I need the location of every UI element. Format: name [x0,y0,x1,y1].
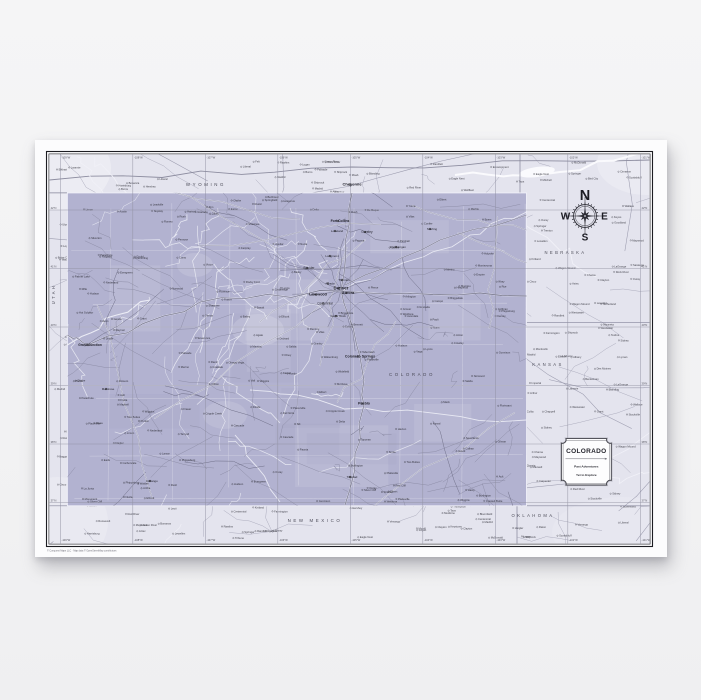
svg-text:Scottsbluff: Scottsbluff [559,534,572,538]
svg-text:Springfield: Springfield [265,198,278,202]
svg-text:Norwood: Norwood [474,374,485,378]
svg-text:Madrid: Madrid [315,186,324,190]
svg-text:Elbert: Elbert [319,390,326,394]
svg-text:Fleming: Fleming [310,327,320,331]
svg-text:Blanding: Blanding [609,387,620,391]
svg-text:Grant: Grant [597,409,604,413]
svg-text:Divide: Divide [253,405,261,409]
svg-text:Weldona: Weldona [403,312,414,316]
svg-text:Walsenburg: Walsenburg [324,355,339,359]
svg-text:40°N: 40°N [51,323,57,327]
svg-text:Ault: Ault [120,393,125,397]
svg-text:Parshall: Parshall [400,239,410,243]
svg-text:Logan: Logan [524,534,532,538]
svg-text:Colorado Springs: Colorado Springs [345,355,375,359]
svg-text:Sidney: Sidney [544,426,553,430]
svg-text:Granada: Granada [197,210,208,214]
svg-text:39°N: 39°N [642,381,648,385]
svg-text:Albany: Albany [573,355,582,359]
svg-text:Wray: Wray [498,280,505,284]
svg-text:La Junta: La Junta [84,486,95,490]
svg-text:Denver: Denver [334,286,349,291]
svg-text:Chama: Chama [587,273,596,277]
svg-text:Kirtland: Kirtland [532,257,542,261]
svg-text:Wiggins: Wiggins [460,498,470,502]
svg-text:Vega: Vega [416,350,423,354]
svg-text:KANSAS: KANSAS [532,362,563,367]
svg-text:Centennial: Centennial [542,198,555,202]
svg-text:UTAH: UTAH [51,284,56,305]
svg-text:Grand Junction: Grand Junction [78,343,102,347]
svg-text:Farmington: Farmington [274,509,288,513]
svg-text:Red Cliff: Red Cliff [396,483,407,487]
svg-text:Two Buttes: Two Buttes [127,415,141,419]
svg-text:Nucla: Nucla [300,242,307,246]
svg-text:Burlington: Burlington [351,464,364,468]
svg-text:Rand: Rand [211,360,218,364]
svg-text:Flagler: Flagler [115,441,123,445]
svg-text:Weldona: Weldona [387,499,398,503]
svg-text:Liberal: Liberal [243,165,251,169]
svg-text:McDonald: McDonald [574,161,587,165]
svg-text:Orchard: Orchard [279,337,289,341]
svg-text:Nucla: Nucla [126,495,133,499]
svg-text:Agate: Agate [256,333,264,337]
svg-text:Ellicott: Ellicott [281,315,289,319]
svg-text:Romeo: Romeo [164,220,173,224]
svg-text:-106°W: -106°W [279,156,288,160]
svg-text:Madrid: Madrid [277,175,286,179]
svg-text:Nunn: Nunn [433,326,440,330]
svg-text:Logan: Logan [302,162,310,166]
svg-text:Gunnison: Gunnison [499,351,511,355]
svg-text:Holyoke: Holyoke [484,251,494,255]
svg-text:Springer: Springer [536,224,546,228]
svg-text:Maywood: Maywood [632,238,644,242]
svg-text:Tarryall: Tarryall [180,432,189,436]
svg-text:Benkelman: Benkelman [585,377,599,381]
svg-text:Green River: Green River [325,160,340,164]
svg-text:Widefield: Widefield [338,370,350,374]
svg-text:Bennett: Bennett [354,323,364,327]
svg-text:Hershey: Hershey [146,185,157,189]
svg-text:Eagle Nest: Eagle Nest [536,172,549,176]
svg-text:Sutherland: Sutherland [623,504,637,508]
svg-text:Clayton: Clayton [600,278,610,282]
svg-text:Shawnee: Shawnee [248,222,260,226]
svg-text:Red River: Red River [573,487,585,491]
svg-text:Felt: Felt [255,160,260,164]
svg-text:Sterling: Sterling [427,227,438,231]
svg-text:Montezuma: Montezuma [478,263,493,267]
svg-text:Crowley: Crowley [454,341,464,345]
svg-text:Laramie: Laramie [71,165,81,169]
svg-text:Shawnee: Shawnee [208,304,220,308]
svg-text:Wallace: Wallace [625,204,635,208]
svg-text:Arriba: Arriba [143,486,151,490]
svg-text:LaGrange: LaGrange [614,265,626,269]
svg-text:Norwood: Norwood [172,287,183,291]
svg-text:Hudson: Hudson [398,344,408,348]
svg-text:37°N: 37°N [642,498,648,502]
svg-text:Severance: Severance [197,336,210,340]
svg-text:Thornton: Thornton [338,278,350,282]
svg-text:Manitou: Manitou [461,284,471,288]
svg-text:Pagosa: Pagosa [355,239,365,243]
svg-text:Genoa: Genoa [205,314,214,318]
svg-text:-103°W: -103°W [497,156,506,160]
svg-text:Platteville: Platteville [387,471,399,475]
svg-text:Severance: Severance [466,436,479,440]
svg-text:Laramie: Laramie [569,387,579,391]
svg-text:Haxtun: Haxtun [398,427,407,431]
svg-text:Mitchell: Mitchell [543,178,553,182]
svg-text:Aztec: Aztec [139,529,146,533]
svg-text:WYOMING: WYOMING [186,182,226,187]
svg-text:Evergreen: Evergreen [254,479,267,483]
svg-text:Cripple Creek: Cripple Creek [206,412,223,416]
svg-text:Chappell: Chappell [545,410,556,414]
svg-text:Castle Rock: Castle Rock [330,314,346,318]
svg-text:COLORADO: COLORADO [566,448,606,455]
svg-text:Granada: Granada [419,305,430,309]
svg-text:Hershey: Hershey [352,506,363,510]
svg-text:-109°W: -109°W [62,538,71,542]
svg-text:Paoli: Paoli [433,318,439,322]
svg-text:Crested Butte: Crested Butte [486,499,503,503]
svg-text:-102°W: -102°W [569,156,578,160]
svg-text:Paonia: Paonia [300,448,309,452]
svg-text:41°N: 41°N [51,264,57,268]
svg-text:Ouray: Ouray [275,470,283,474]
svg-text:Rush: Rush [180,215,187,219]
svg-text:-108°W: -108°W [134,538,143,542]
svg-text:Elbert: Elbert [439,198,446,202]
svg-text:Stockville: Stockville [629,412,641,416]
svg-text:Morrill: Morrill [419,526,427,530]
svg-text:-102°W: -102°W [569,538,578,542]
svg-text:-104°W: -104°W [424,538,433,542]
svg-text:-105°W: -105°W [352,538,361,542]
svg-text:Wagon Mound: Wagon Mound [572,302,590,306]
svg-text:Eaton: Eaton [231,207,239,211]
svg-text:Longmont: Longmont [325,254,339,258]
svg-text:Chama: Chama [534,450,543,454]
svg-text:Mack: Mack [443,400,450,404]
svg-text:Silverton: Silverton [91,236,102,240]
svg-text:Manitou: Manitou [252,345,262,349]
svg-text:Hudson: Hudson [234,482,244,486]
svg-text:Red River: Red River [128,512,140,516]
svg-text:Placerville: Placerville [293,406,306,410]
svg-text:Eckley: Eckley [345,325,354,329]
svg-text:Sutherland: Sutherland [603,302,617,306]
svg-text:Merino: Merino [181,365,190,369]
svg-text:Limon: Limon [86,207,94,211]
svg-text:Liberal: Liberal [160,177,168,181]
svg-text:Grant: Grant [140,316,147,320]
svg-text:Fruita: Fruita [120,398,127,402]
svg-text:Baggs: Baggs [59,454,67,458]
svg-text:Stockville: Stockville [590,497,602,501]
svg-text:Madrid: Madrid [485,520,494,524]
svg-text:Cisco: Cisco [60,483,67,487]
svg-text:-103°W: -103°W [497,538,506,542]
svg-text:Del Norte: Del Norte [283,411,295,415]
svg-text:Burns: Burns [121,187,129,191]
svg-text:Rush: Rush [171,483,178,487]
svg-text:Aztec: Aztec [572,282,579,286]
svg-text:Clayton: Clayton [438,525,448,529]
svg-text:Silt: Silt [297,422,301,426]
svg-text:Briggsdale: Briggsdale [450,296,463,300]
svg-text:Fraser: Fraser [224,298,232,302]
svg-text:Liberal: Liberal [621,521,629,525]
svg-text:Pueblo: Pueblo [358,402,371,406]
svg-text:Nederland: Nederland [150,428,163,432]
svg-text:Kersey: Kersey [497,314,506,318]
svg-text:E: E [601,211,608,222]
svg-text:Cheyenne: Cheyenne [342,182,362,187]
svg-text:Leoti: Leoti [171,507,177,511]
svg-text:-108°W: -108°W [134,156,143,160]
svg-text:LaGrange: LaGrange [616,383,628,387]
svg-text:Taos: Taos [519,179,525,183]
svg-text:Stratton: Stratton [384,490,394,494]
svg-text:Bonanza: Bonanza [160,522,171,526]
svg-text:Conifer: Conifer [424,222,433,226]
svg-text:Westwater: Westwater [571,311,584,315]
svg-text:Fort Collins: Fort Collins [331,219,350,223]
svg-text:Elkhart: Elkhart [59,167,68,171]
svg-text:Ogallala: Ogallala [267,529,277,533]
svg-text:Basalt: Basalt [257,305,265,309]
svg-text:Greeley: Greeley [361,230,373,234]
svg-text:Delta: Delta [339,420,346,424]
svg-text:-101°W: -101°W [642,538,651,542]
svg-text:Ouray: Ouray [633,277,641,281]
svg-text:Eads: Eads [104,458,111,462]
svg-text:Elkhart: Elkhart [558,355,567,359]
svg-text:Sidney: Sidney [612,492,621,496]
svg-text:Moab: Moab [352,173,359,177]
svg-text:Olathe: Olathe [77,379,85,383]
svg-text:Lyman: Lyman [619,355,627,359]
svg-text:Two Buttes: Two Buttes [407,460,421,464]
svg-text:Dotsero: Dotsero [119,379,129,383]
svg-text:Evergreen: Evergreen [120,271,133,275]
svg-text:Boulder: Boulder [304,266,316,270]
svg-text:Como: Como [179,256,187,260]
svg-text:Delta: Delta [313,208,320,212]
svg-text:Cimarron: Cimarron [620,170,632,174]
svg-text:Wallace: Wallace [633,402,643,406]
svg-text:Rock River: Rock River [616,270,629,274]
svg-text:Karval: Karval [283,371,291,375]
svg-text:Randlett: Randlett [554,313,564,317]
svg-text:Arthur: Arthur [530,391,537,395]
svg-text:Springer: Springer [571,172,581,176]
svg-text:Byers: Byers [485,217,493,221]
svg-text:37°N: 37°N [51,498,57,502]
svg-text:Palisade: Palisade [317,167,328,171]
svg-text:Vail: Vail [251,379,256,383]
svg-text:Fort Morgan: Fort Morgan [390,245,406,249]
svg-text:Platteville: Platteville [398,497,410,501]
svg-text:W: W [561,211,571,222]
svg-text:Randlett: Randlett [257,529,267,533]
svg-text:Sidney: Sidney [621,338,630,342]
svg-text:38°N: 38°N [642,440,648,444]
svg-text:-101°W: -101°W [642,156,651,160]
svg-text:Salida: Salida [465,379,473,383]
svg-text:Ouray: Ouray [541,218,549,222]
svg-text:Genoa: Genoa [114,317,123,321]
svg-text:Cisco: Cisco [530,280,537,284]
svg-text:Wiggins: Wiggins [260,379,270,383]
svg-text:Parachute: Parachute [100,253,113,257]
svg-text:Maywood: Maywood [534,455,546,459]
svg-text:Wauneta: Wauneta [603,323,614,327]
svg-text:Venango: Venango [390,519,401,523]
svg-text:-104°W: -104°W [424,156,433,160]
svg-text:Past Adventures: Past Adventures [574,464,599,468]
svg-text:Penrose: Penrose [178,238,189,242]
svg-text:Florissant: Florissant [500,404,512,408]
svg-text:Marble: Marble [471,207,480,211]
svg-text:Olney: Olney [212,212,220,216]
svg-text:Trenton: Trenton [544,228,554,232]
svg-text:Goodland: Goodland [614,221,626,225]
svg-text:Bonanza: Bonanza [129,181,140,185]
svg-text:Palmer Lake: Palmer Lake [75,275,91,279]
svg-text:Palisade: Palisade [181,351,192,355]
svg-text:Lakewood: Lakewood [309,293,327,297]
svg-text:Carbondale: Carbondale [123,461,137,465]
svg-text:Madrid: Madrid [57,387,66,391]
svg-text:Rawlins: Rawlins [224,524,234,528]
svg-text:Limon: Limon [127,431,135,435]
svg-text:Aurora: Aurora [342,291,355,295]
svg-text:Vilas: Vilas [409,215,415,219]
svg-text:Shiprock: Shiprock [314,180,325,184]
svg-text:Pierce: Pierce [371,286,379,290]
svg-text:Rye: Rye [502,285,507,289]
svg-text:Cascade: Cascade [234,423,245,427]
svg-text:Punkin: Punkin [141,419,150,423]
svg-text:Salida: Salida [289,345,297,349]
svg-text:NEW MEXICO: NEW MEXICO [288,518,343,523]
svg-text:Eagle Nest: Eagle Nest [451,177,464,181]
svg-text:Cascade: Cascade [283,435,294,439]
svg-text:Venango: Venango [578,522,589,526]
svg-text:Avon: Avon [102,319,109,323]
svg-text:Campo: Campo [435,299,444,303]
svg-text:39°N: 39°N [51,381,57,385]
svg-text:Anton: Anton [456,333,464,337]
svg-text:Empire: Empire [476,273,485,277]
svg-text:Hasty: Hasty [468,488,476,492]
svg-text:Fraser: Fraser [183,407,191,411]
svg-text:Phippsburg: Phippsburg [182,458,196,462]
svg-text:Aguilar: Aguilar [275,242,283,246]
svg-text:Lyons: Lyons [283,286,291,290]
svg-text:Wellfleet: Wellfleet [464,188,475,192]
svg-text:Rush: Rush [351,210,358,214]
svg-text:Coaldale: Coaldale [212,365,223,369]
svg-text:Olney: Olney [284,353,292,357]
svg-text:Colby: Colby [527,410,535,414]
svg-text:Bailey: Bailey [243,315,251,319]
svg-text:Vega: Vega [238,361,245,365]
svg-text:Tribune: Tribune [235,536,245,540]
svg-text:N: N [580,188,590,204]
svg-text:Farmington: Farmington [546,331,560,335]
svg-text:Leadville: Leadville [153,203,164,207]
svg-text:-107°W: -107°W [207,156,216,160]
svg-text:Green River: Green River [143,523,158,527]
svg-text:Harrisburg: Harrisburg [87,532,100,536]
svg-text:Lewellen: Lewellen [537,239,548,243]
svg-text:42°N: 42°N [51,206,57,210]
svg-text:Shiprock: Shiprock [567,331,578,335]
svg-text:Divide: Divide [106,336,114,340]
svg-text:Texline: Texline [611,333,620,337]
svg-text:Kim: Kim [209,205,214,209]
svg-text:Bird City: Bird City [588,177,599,181]
svg-text:Trinidad: Trinidad [347,475,358,479]
svg-text:Hesperus: Hesperus [283,199,295,203]
svg-text:Silver Cliff: Silver Cliff [364,488,376,492]
svg-text:NEBRASKA: NEBRASKA [544,250,586,255]
svg-text:Imperial: Imperial [532,381,542,385]
svg-text:Haigler: Haigler [515,526,524,530]
svg-text:Gilman: Gilman [498,440,507,444]
svg-text:Montrose: Montrose [102,387,115,391]
svg-text:41°N: 41°N [642,264,648,268]
svg-text:Wiggins: Wiggins [145,409,155,413]
svg-text:Calhan: Calhan [465,447,474,451]
svg-text:Westwater: Westwater [572,405,585,409]
svg-text:Lyons: Lyons [426,347,434,351]
svg-text:38°N: 38°N [51,440,57,444]
svg-text:Rifle: Rifle [82,287,88,291]
svg-text:Questa: Questa [527,464,536,468]
svg-text:40°N: 40°N [642,323,648,327]
svg-text:Loveland: Loveland [331,229,344,233]
svg-text:Merino: Merino [446,268,455,272]
svg-text:Bloomfield: Bloomfield [480,512,493,516]
svg-text:Maybell: Maybell [120,403,130,407]
svg-text:Wagon Mound: Wagon Mound [558,266,576,270]
svg-text:Tabernash: Tabernash [362,350,375,354]
svg-text:Keystone: Keystone [451,525,463,529]
svg-text:Shiprock: Shiprock [337,170,348,174]
svg-text:Blanding: Blanding [369,172,380,176]
svg-text:Granby: Granby [314,342,323,346]
svg-text:Vilas: Vilas [319,330,325,334]
svg-text:Burlington: Burlington [479,494,492,498]
svg-text:Toponas: Toponas [361,438,372,442]
svg-text:Scottsbluff: Scottsbluff [629,175,642,179]
svg-text:Fairplay: Fairplay [241,246,251,250]
svg-text:Ellicott: Ellicott [146,496,154,500]
svg-text:Kremmling: Kremmling [135,256,148,260]
svg-text:Karval: Karval [433,422,441,426]
svg-text:Medicine: Medicine [444,511,455,515]
svg-text:-105°W: -105°W [352,156,361,160]
svg-text:Wagon Mound: Wagon Mound [618,445,636,449]
